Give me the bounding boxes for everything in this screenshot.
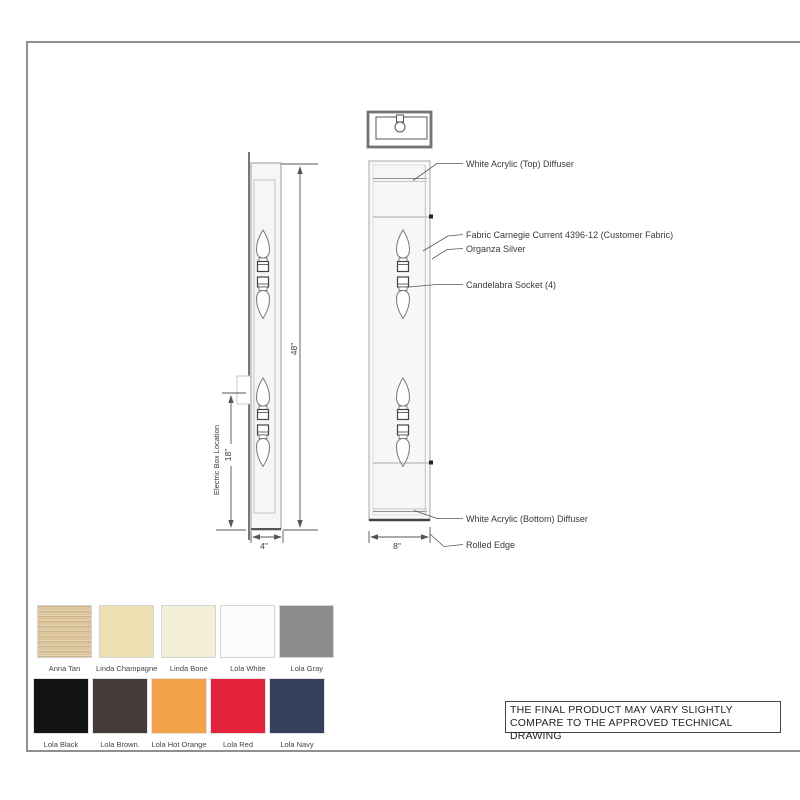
annotation-bottom-diffuser: White Acrylic (Bottom) Diffuser	[466, 514, 588, 524]
swatch-row-1: Anna Tan Linda Champagne Linda Bone Lola…	[37, 605, 334, 673]
swatch-label: Linda Bone	[170, 664, 208, 673]
side-view	[237, 152, 281, 540]
swatch-row-2: Lola Black Lola Brown. Lola Hot Orange L…	[33, 678, 325, 749]
technical-drawing-page: { "drawing": { "annotations": { "top_dif…	[0, 0, 800, 800]
annotation-fabric: Fabric Carnegie Current 4396-12 (Custome…	[466, 230, 673, 240]
swatch-color-lola-navy	[269, 678, 325, 734]
annotation-rolled-edge: Rolled Edge	[466, 540, 515, 550]
swatch-label: Lola Red	[223, 740, 253, 749]
annotation-socket: Candelabra Socket (4)	[466, 280, 556, 290]
electric-box	[237, 376, 251, 404]
dim-front-width-label: 8"	[393, 541, 401, 551]
disclaimer-line-1: THE FINAL PRODUCT MAY VARY SLIGHTLY	[510, 704, 776, 717]
disclaimer-note-box: THE FINAL PRODUCT MAY VARY SLIGHTLY COMP…	[505, 701, 781, 733]
swatch-lola-black: Lola Black	[33, 678, 89, 749]
annotation-organza: Organza Silver	[466, 244, 526, 254]
swatch-lola-brown: Lola Brown.	[92, 678, 148, 749]
swatch-label: Lola Navy	[280, 740, 313, 749]
swatch-label: Lola Gray	[291, 664, 324, 673]
annotation-top-diffuser: White Acrylic (Top) Diffuser	[466, 159, 574, 169]
swatch-color-lola-red	[210, 678, 266, 734]
dim-electric-box-label: 18"	[223, 449, 233, 461]
front-view	[369, 161, 433, 520]
swatch-color-lola-brown	[92, 678, 148, 734]
swatch-label: Lola White	[230, 664, 265, 673]
swatch-lola-hot-orange: Lola Hot Orange	[151, 678, 207, 749]
swatch-label: Linda Champagne	[96, 664, 157, 673]
swatch-color-lola-gray	[279, 605, 334, 658]
swatch-color-anna-tan	[37, 605, 92, 658]
top-view-socket-icon	[395, 115, 405, 132]
swatch-color-lola-black	[33, 678, 89, 734]
swatch-label: Lola Black	[44, 740, 79, 749]
dim-side-depth-label: 4"	[260, 541, 268, 551]
swatch-label: Anna Tan	[49, 664, 81, 673]
swatch-color-lola-hot-orange	[151, 678, 207, 734]
swatch-label: Lola Brown.	[100, 740, 140, 749]
dim-height-label: 48"	[289, 343, 299, 355]
swatch-lola-navy: Lola Navy	[269, 678, 325, 749]
electric-box-location-label: Electric Box Location	[212, 425, 221, 495]
top-view	[368, 112, 431, 147]
swatch-color-linda-bone	[161, 605, 216, 658]
swatch-lola-white: Lola White	[220, 605, 275, 673]
swatch-linda-bone: Linda Bone	[161, 605, 216, 673]
swatch-color-linda-champagne	[99, 605, 154, 658]
swatch-label: Lola Hot Orange	[151, 740, 206, 749]
swatch-anna-tan: Anna Tan	[37, 605, 92, 673]
swatch-lola-red: Lola Red	[210, 678, 266, 749]
swatch-color-lola-white	[220, 605, 275, 658]
swatch-lola-gray: Lola Gray	[279, 605, 334, 673]
disclaimer-line-2: COMPARE TO THE APPROVED TECHNICAL DRAWIN…	[510, 717, 776, 743]
swatch-linda-champagne: Linda Champagne	[96, 605, 157, 673]
